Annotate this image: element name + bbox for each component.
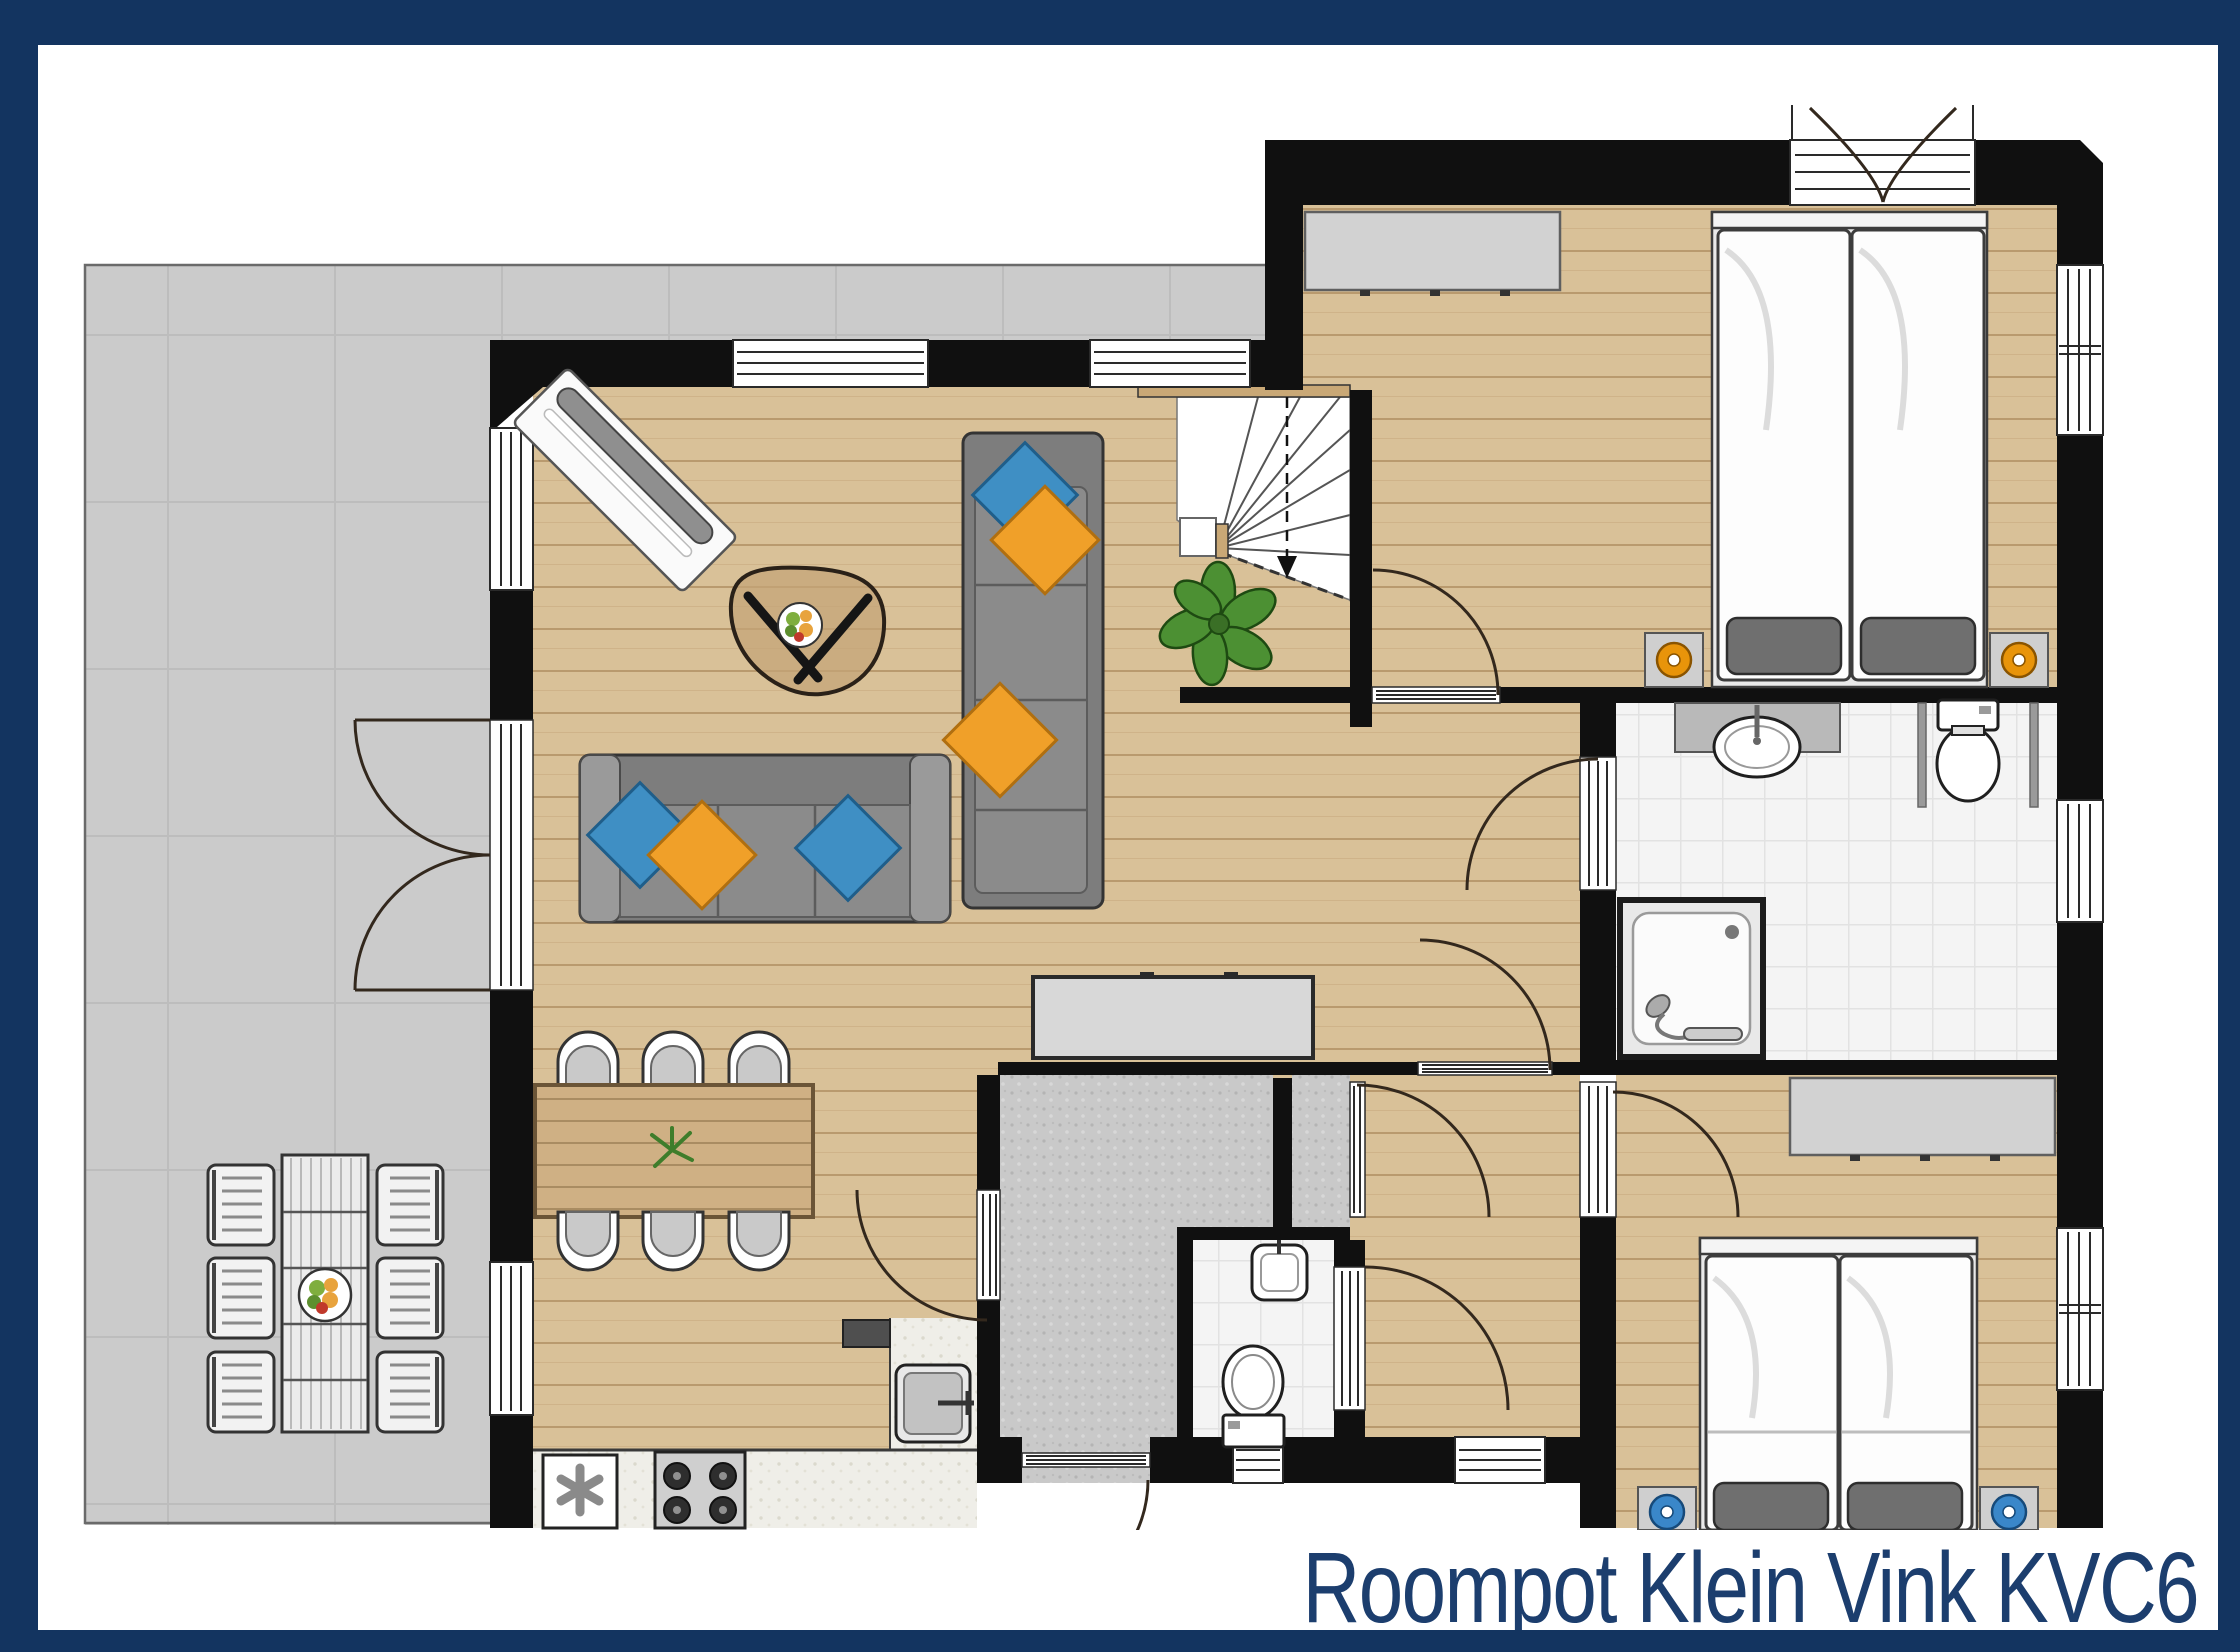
nightstand-bed1-left: [1645, 633, 1703, 687]
double-bed-2: [1700, 1238, 1977, 1530]
window-living-top-2: [1090, 340, 1250, 387]
fruit-bowl: [299, 1269, 351, 1321]
shower: [1620, 900, 1763, 1057]
pillow-bed2-right: [1848, 1483, 1962, 1530]
outside-below-entrance: [977, 1483, 1616, 1530]
wc-sink: [1252, 1240, 1307, 1300]
window-living-top-1: [733, 340, 928, 387]
nightstand-bed2-left: [1638, 1487, 1696, 1530]
footboard: [1700, 1238, 1977, 1254]
kitchen-appliance: [843, 1320, 890, 1347]
window-living-left-1: [490, 428, 533, 590]
boiler: [543, 1455, 617, 1528]
kitchen-sink: [896, 1365, 974, 1442]
garden-furniture-set: [208, 1155, 443, 1432]
wardrobe-bedroom2: [1790, 1078, 2055, 1161]
floorplan-canvas: Roompot Klein Vink KVC6: [0, 0, 2240, 1652]
pillow-bed2-left: [1714, 1483, 1828, 1530]
dining-table: [535, 1085, 813, 1217]
double-bed-1: [1712, 212, 1987, 687]
shower-drain: [1725, 925, 1739, 939]
chaise-sofa: [943, 433, 1103, 908]
plan-title: Roompot Klein Vink KVC6: [1303, 1533, 2198, 1645]
nightstand-bed1-right: [1990, 633, 2048, 687]
stove: [655, 1452, 745, 1528]
garden-table: [282, 1155, 368, 1432]
window-corridor-bottom: [1455, 1437, 1545, 1483]
wc-toilet: [1223, 1346, 1284, 1447]
window-bedroom1-right: [2057, 265, 2103, 435]
stair-landing: [1180, 518, 1216, 556]
vestibule-floor: [1292, 1075, 1350, 1240]
window-bedroom2-right: [2057, 1228, 2103, 1390]
sideboard: [1033, 972, 1313, 1058]
nightstand-bed2-right: [1980, 1487, 2038, 1530]
dining-set: [535, 1032, 813, 1270]
wardrobe-bedroom1: [1305, 212, 1560, 296]
fruit-plate: [778, 603, 822, 647]
window-dining-left: [490, 1262, 533, 1415]
headboard: [1712, 212, 1987, 228]
three-seat-sofa: [580, 755, 950, 922]
window-bathroom-right: [2057, 800, 2103, 922]
pillow-bed1-left: [1727, 618, 1841, 674]
pillow-bed1-right: [1861, 618, 1975, 674]
